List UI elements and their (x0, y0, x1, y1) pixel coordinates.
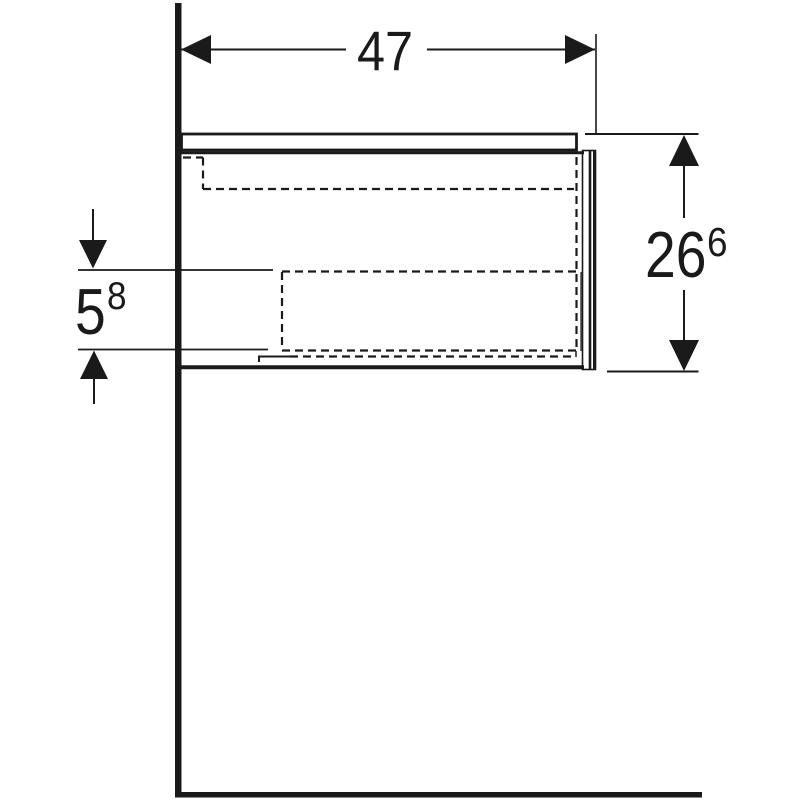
wall-line (175, 3, 182, 795)
floor-line (175, 792, 702, 798)
drawing-svg: 47 26 6 5 8 (0, 0, 800, 800)
drawer-dashed-outline (183, 157, 581, 362)
offset-dimension-superscript: 8 (107, 273, 127, 317)
width-dimension-label: 47 (357, 21, 413, 83)
arrowhead-up-small-icon (80, 351, 108, 380)
arrowhead-up-icon (669, 135, 699, 166)
technical-drawing: 47 26 6 5 8 (0, 0, 800, 800)
arrowhead-down-icon (669, 340, 699, 371)
height-dimension-label: 26 (645, 218, 706, 291)
cabinet-body (182, 153, 585, 367)
offset-dimension-label: 5 (75, 275, 106, 348)
arrowhead-left-icon (181, 35, 211, 64)
bottom-tray-corner (259, 357, 290, 363)
arrowhead-right-icon (565, 35, 595, 64)
height-dimension-superscript: 6 (707, 220, 728, 265)
arrowhead-down-small-icon (79, 240, 107, 269)
width-dimension: 47 (181, 21, 596, 134)
wall-offset-dimension: 5 8 (75, 209, 273, 404)
height-dimension: 26 6 (585, 134, 728, 372)
countertop (182, 134, 577, 150)
cabinet-front-panel (583, 151, 596, 370)
